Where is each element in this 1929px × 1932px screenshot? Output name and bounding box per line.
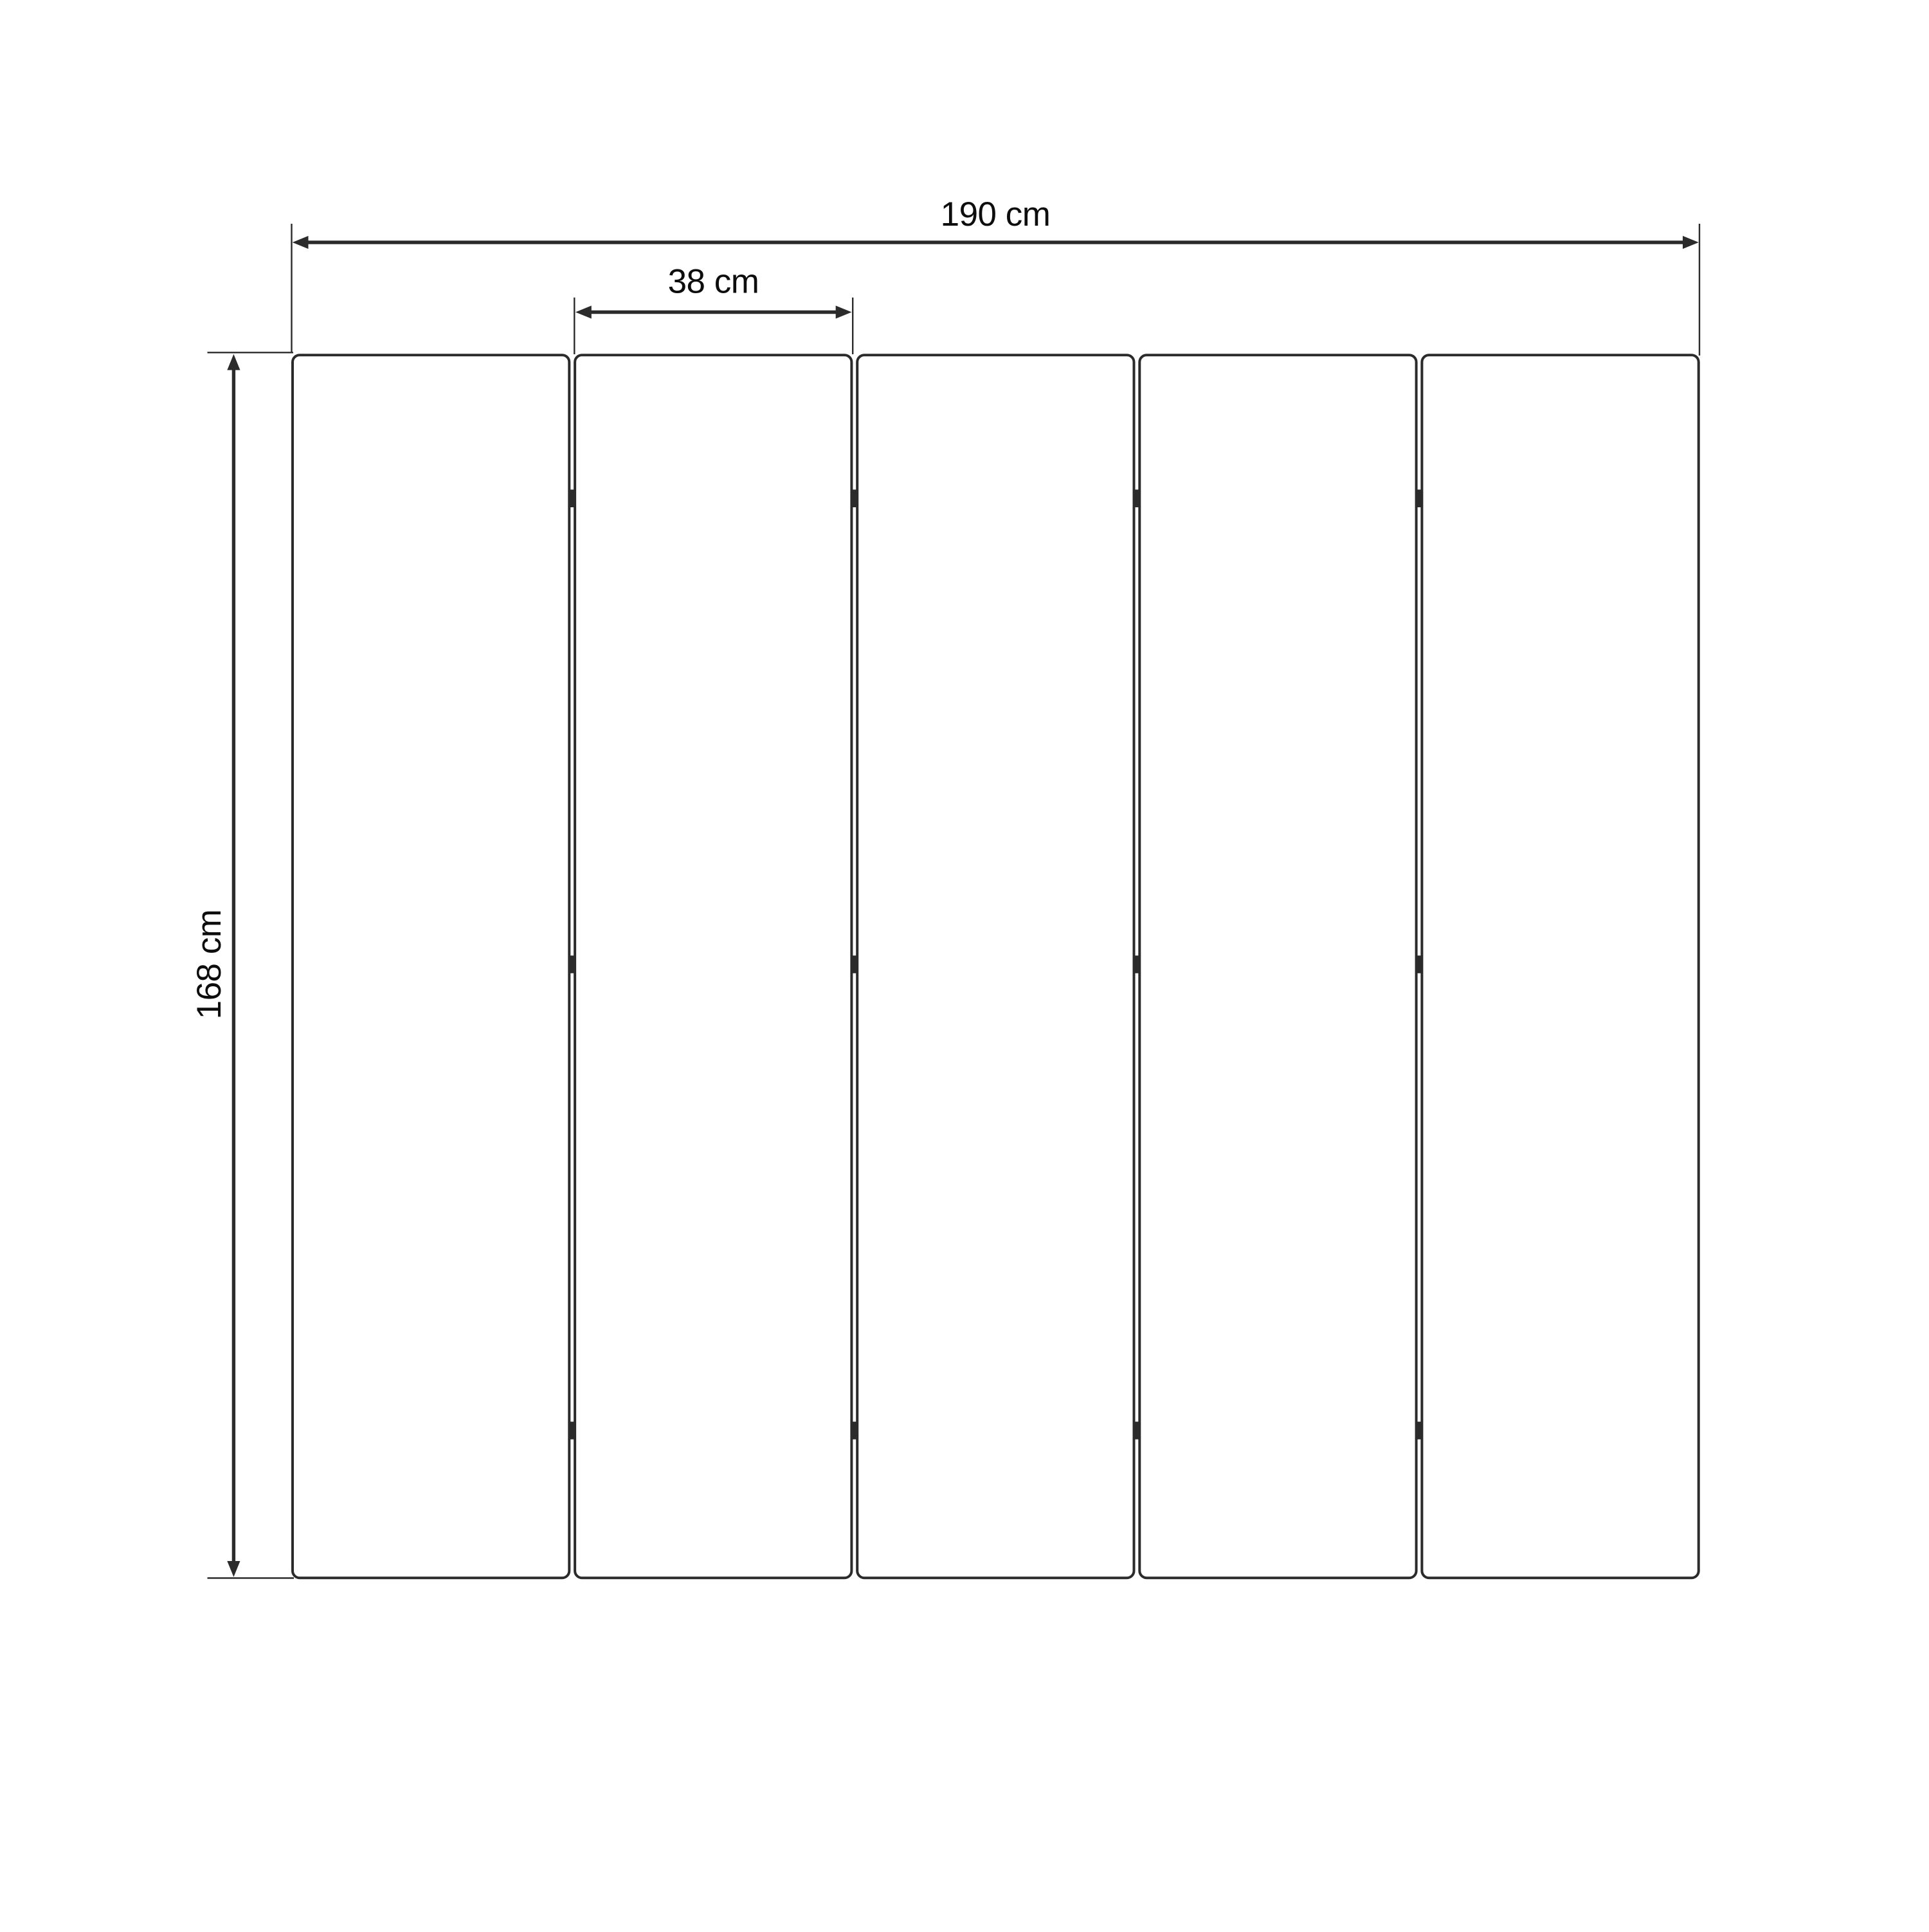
svg-text:190 cm: 190 cm <box>941 195 1051 233</box>
svg-text:38 cm: 38 cm <box>668 263 759 301</box>
svg-text:168 cm: 168 cm <box>190 910 228 1020</box>
